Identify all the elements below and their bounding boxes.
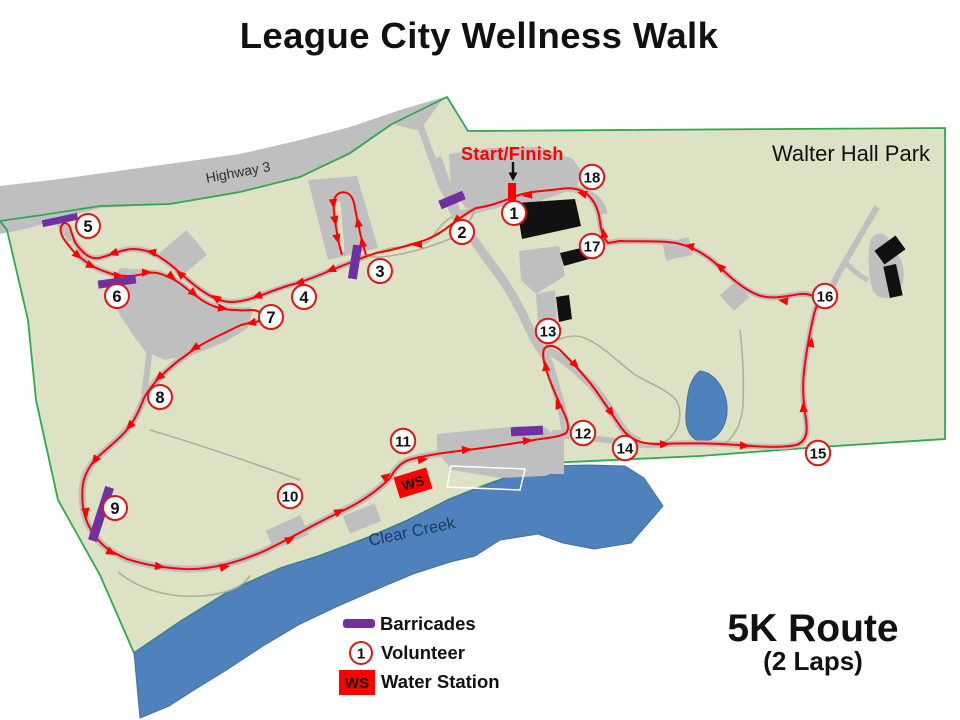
svg-text:3: 3 <box>375 263 384 281</box>
svg-text:16: 16 <box>817 289 834 306</box>
svg-text:14: 14 <box>617 441 634 458</box>
svg-text:5: 5 <box>83 218 92 236</box>
svg-text:2: 2 <box>457 224 466 242</box>
svg-text:Water Station: Water Station <box>381 671 500 692</box>
svg-text:6: 6 <box>112 288 121 306</box>
svg-text:Volunteer: Volunteer <box>381 642 465 663</box>
svg-text:1: 1 <box>509 205 518 223</box>
svg-text:Barricades: Barricades <box>380 613 476 634</box>
svg-text:15: 15 <box>810 446 827 463</box>
svg-text:Walter Hall Park: Walter Hall Park <box>772 141 931 166</box>
svg-text:5K Route: 5K Route <box>727 607 898 650</box>
svg-text:WS: WS <box>345 675 369 692</box>
svg-text:11: 11 <box>395 434 411 451</box>
svg-text:18: 18 <box>584 170 601 187</box>
svg-text:League City Wellness Walk: League City Wellness Walk <box>240 15 719 56</box>
svg-text:7: 7 <box>266 309 275 327</box>
svg-text:10: 10 <box>282 489 299 506</box>
svg-text:(2 Laps): (2 Laps) <box>763 646 863 676</box>
svg-text:8: 8 <box>155 389 164 407</box>
svg-text:1: 1 <box>357 646 365 663</box>
svg-text:4: 4 <box>299 289 309 307</box>
svg-text:12: 12 <box>575 426 592 443</box>
svg-text:9: 9 <box>110 500 119 518</box>
svg-text:17: 17 <box>584 239 601 256</box>
svg-text:13: 13 <box>540 324 557 341</box>
svg-text:Start/Finish: Start/Finish <box>461 144 564 164</box>
